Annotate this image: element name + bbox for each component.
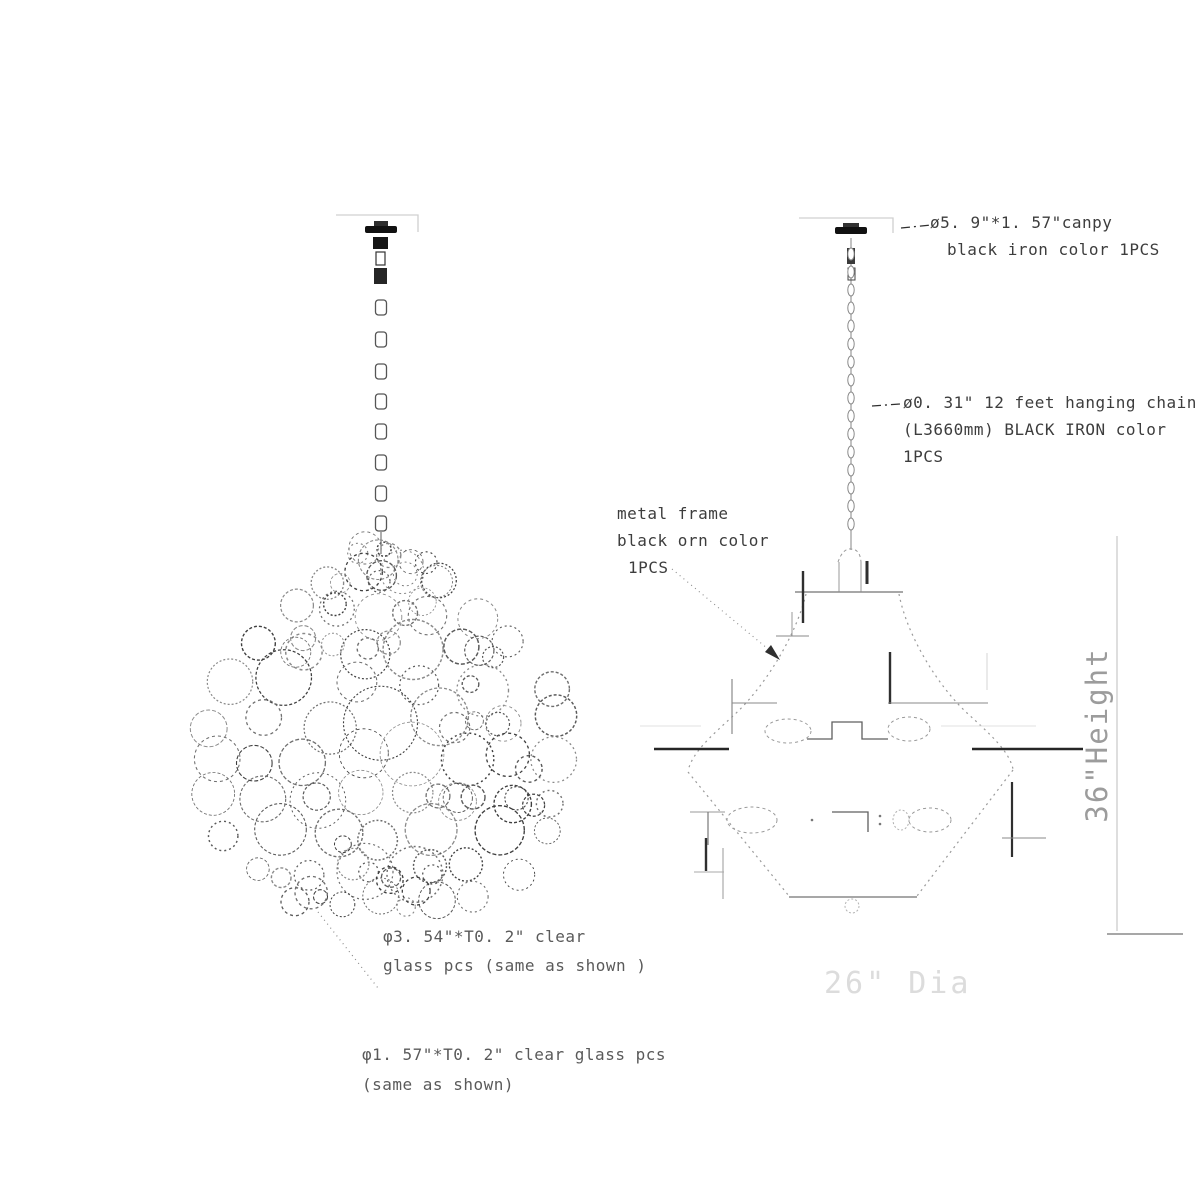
- frame-outline: [688, 594, 1013, 896]
- chain-note-line1: ø0. 31" 12 feet hanging chain: [903, 393, 1197, 412]
- height-dimension-label: 36"Height: [1080, 585, 1114, 885]
- leader-chain: [872, 404, 900, 406]
- chain-note-line2: (L3660mm) BLACK IRON color: [903, 420, 1166, 439]
- canopy-note-line2: black iron color 1PCS: [947, 240, 1160, 259]
- hanging-chain-right: [847, 238, 855, 550]
- frame-note-line3: 1PCS: [628, 558, 669, 577]
- diameter-dimension-label: 26" Dia: [824, 966, 971, 1001]
- glass-small-note-line1: φ1. 57"*T0. 2" clear glass pcs: [362, 1045, 666, 1064]
- technical-drawing-page: ø5. 9"*1. 57"canpy black iron color 1PCS…: [0, 0, 1200, 1200]
- canopy-note-line1: ø5. 9"*1. 57"canpy: [930, 213, 1112, 232]
- drawing-linework: [0, 0, 1200, 1200]
- section-tick-marks: [690, 571, 1046, 899]
- glass-large-note-line2: glass pcs (same as shown ): [383, 956, 646, 975]
- glass-small-note-line2: (same as shown): [362, 1075, 514, 1094]
- canopy-left: [365, 221, 397, 233]
- leader-glass-large: [318, 912, 378, 988]
- frame-interior-details: [727, 717, 951, 833]
- glass-disc-cluster: [190, 532, 576, 919]
- leader-frame: [672, 569, 774, 654]
- frame-bottom-finial: [845, 899, 859, 913]
- chain-note-line3: 1PCS: [903, 447, 944, 466]
- canopy-right: [835, 223, 867, 234]
- left-chandelier-drawing: [190, 215, 576, 988]
- leader-canopy: [901, 225, 931, 228]
- hanging-chain-left: [373, 237, 388, 554]
- glass-large-note-line1: φ3. 54"*T0. 2" clear: [383, 927, 586, 946]
- frame-note-line1: metal frame: [617, 504, 728, 523]
- frame-neck: [838, 549, 869, 592]
- frame-note-line2: black orn color: [617, 531, 769, 550]
- leader-frame-arrowhead: [765, 645, 780, 660]
